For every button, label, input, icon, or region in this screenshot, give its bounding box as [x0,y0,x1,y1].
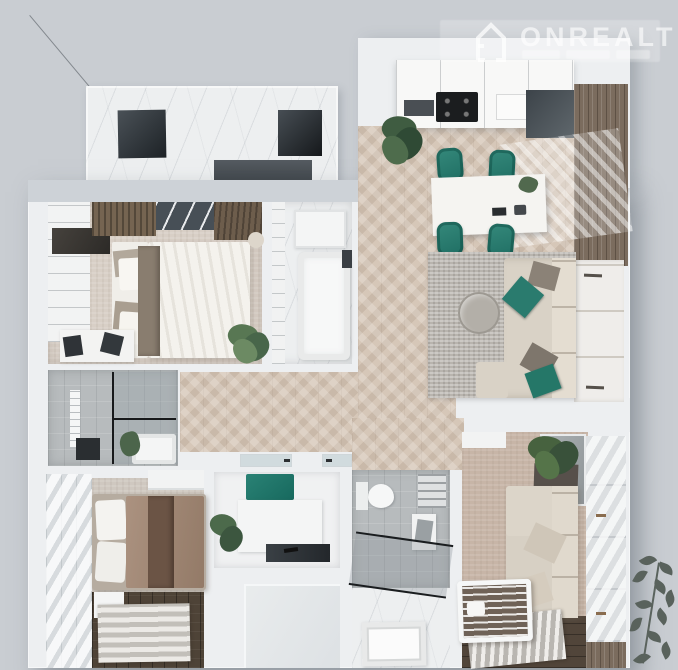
bath-shelf-column [272,202,285,364]
floorplan-render: ONREALT [0,0,678,670]
watermark-brand-text: ONREALT [520,22,677,53]
tall-cabinet-dark [526,90,576,138]
curtain-left [92,202,156,236]
coffee-pouf [458,292,500,334]
bed2-pillow-1 [95,499,127,541]
nursery-shelf-white [462,432,506,448]
plant-nursery [524,430,582,484]
vanity-chair-1 [63,335,84,357]
plant-kitchen [378,110,424,168]
wall-art-dark [342,250,352,268]
leaf-shape [659,641,674,659]
cooktop [436,92,478,122]
leaf-shape [630,616,643,634]
toilet-tank [356,482,368,510]
plant-hall [208,510,246,560]
island-bowl [514,205,526,215]
leaf-shape [633,650,651,667]
rug-bedroom2 [98,603,191,663]
terrace-table-right [278,110,322,156]
window-cabinet-run [574,260,624,402]
master-wardrobe [48,202,90,342]
top-wall-band [28,180,360,202]
bath-shelf-unit [418,474,446,508]
leaf-shape [657,562,675,576]
leaf-shape [653,607,670,625]
island-tray-dark [492,207,506,215]
watermark-tagline-block [566,50,610,59]
bedroom-window [156,202,214,230]
pouf-small [248,232,264,248]
bedroom2-shelf [148,470,204,490]
toilet-bowl [368,484,394,508]
crib-pillow [467,601,485,616]
decor-branch [600,556,678,670]
corridor-floor [352,418,464,470]
watermark-tagline-block [616,50,650,59]
bed2-throw [148,496,174,588]
antenna-line [29,15,94,92]
bathtub [298,252,350,360]
door-handle-2 [326,459,332,462]
washing-machine [294,210,346,248]
hallway-floor [180,372,358,452]
terrace-bench [214,160,312,182]
entry-wardrobe-block [244,584,340,668]
window-handle-1 [596,514,606,517]
teal-cabinet [246,474,294,500]
bed-throw [138,246,160,356]
leaf-shape [639,553,657,569]
shower-frame-bar [112,418,176,420]
watermark: ONREALT [440,14,660,64]
terrace [86,86,338,186]
bedroom2-window-wall [46,474,92,668]
sofa-chaise [476,362,508,398]
plant-bedroom [222,316,274,368]
house-icon [468,16,514,64]
drawer-handle-2 [586,386,604,390]
bed2-pillow-2 [95,541,128,583]
leaf-shape [632,567,648,585]
living-nursery-wall [456,398,630,432]
counter-dark-top [266,544,330,562]
terrace-table-left [118,110,167,159]
door-handle-1 [284,459,290,462]
watermark-tagline-block [522,50,560,59]
shower-tray [362,621,427,666]
island-plant-sprig [517,174,540,196]
leaf-shape [645,630,663,643]
crib [457,579,533,644]
drawer-handle-1 [584,274,602,278]
bath-vanity-dark [76,438,100,460]
